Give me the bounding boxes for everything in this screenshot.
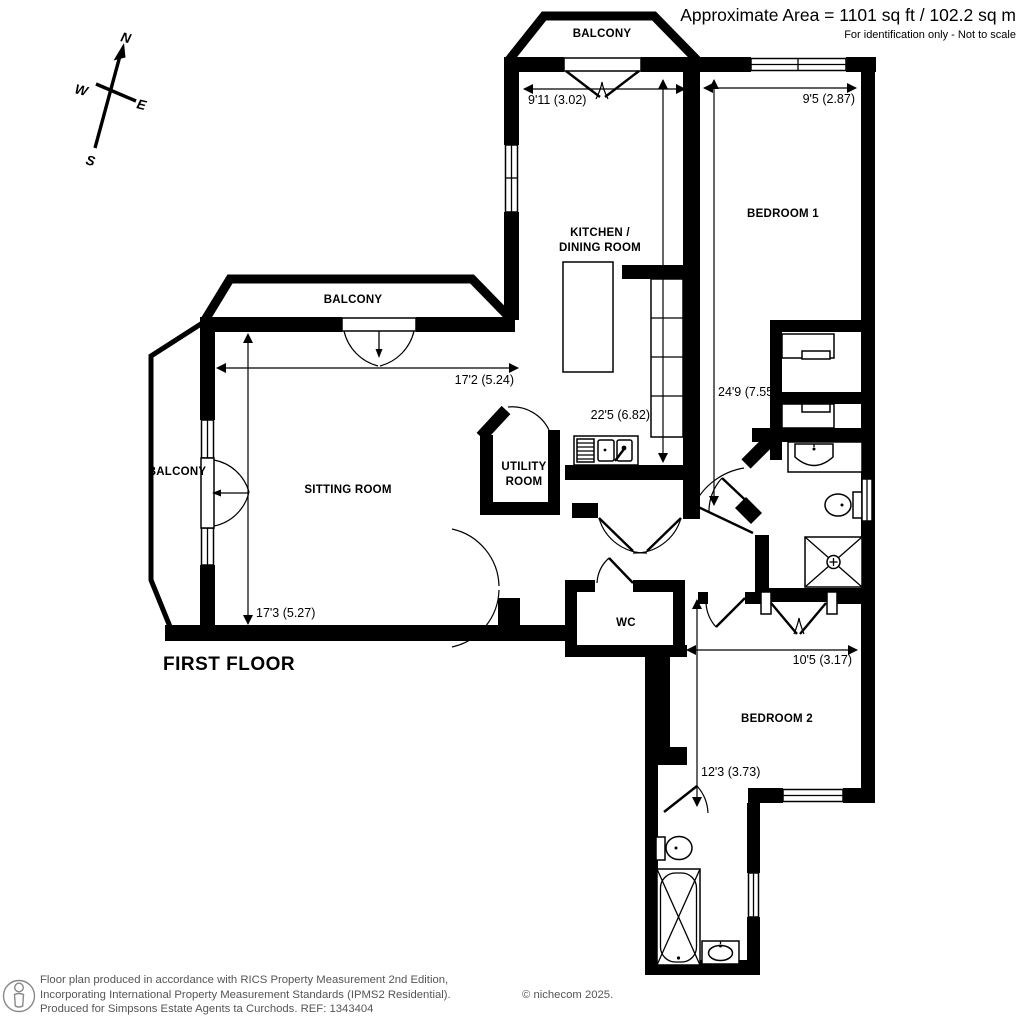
approximate-area-text: Approximate Area = 1101 sq ft / 102.2 sq… xyxy=(680,5,1016,25)
footer-copyright: © nichecom 2025. xyxy=(522,989,613,1001)
label-sitting-room: SITTING ROOM xyxy=(304,484,391,496)
french-doors xyxy=(201,458,249,528)
door-arc xyxy=(508,407,549,430)
footer-line2: Incorporating International Property Mea… xyxy=(40,989,451,1001)
label-utility-2: ROOM xyxy=(506,476,543,488)
label-kitchen-1: KITCHEN / xyxy=(570,227,630,239)
label-bedroom2: BEDROOM 2 xyxy=(741,713,813,725)
door-arc xyxy=(597,558,633,583)
window xyxy=(751,59,846,71)
window xyxy=(749,873,759,917)
radiator-icon xyxy=(862,479,872,521)
nichecom-logo-icon xyxy=(4,981,35,1012)
compass-n: N xyxy=(119,29,132,46)
label-wc: WC xyxy=(616,617,636,629)
wardrobe xyxy=(782,334,834,359)
dim-sitting-width: 17'2 (5.24) xyxy=(455,373,514,387)
balcony-left-outline xyxy=(151,322,204,634)
dim-kitchen-width: 9'11 (3.02) xyxy=(528,93,586,107)
window xyxy=(202,528,214,565)
footer-line3: Produced for Simpsons Estate Agents ta C… xyxy=(40,1003,373,1015)
french-doors xyxy=(342,318,416,366)
dim-bedroom2-width: 10'5 (3.17) xyxy=(793,653,852,667)
compass-s: S xyxy=(84,152,96,169)
floor-plan-drawing: 9'11 (3.02) 9'5 (2.87) 22'5 (6.82) 24'9 … xyxy=(0,0,1024,1020)
window xyxy=(506,145,518,212)
fixtures xyxy=(563,262,872,965)
doors xyxy=(201,58,837,813)
label-bedroom1: BEDROOM 1 xyxy=(747,208,819,220)
dim-bedroom1-length: 24'9 (7.55) xyxy=(718,385,777,399)
identification-note: For identification only - Not to scale xyxy=(844,29,1016,41)
dim-bedroom2-length: 12'3 (3.73) xyxy=(701,765,760,779)
walls xyxy=(165,57,876,975)
window xyxy=(202,420,214,458)
label-kitchen-2: DINING ROOM xyxy=(559,242,641,254)
label-balcony-top: BALCONY xyxy=(573,28,632,40)
basin-icon xyxy=(702,941,739,964)
dim-bedroom1-width: 9'5 (2.87) xyxy=(803,92,855,106)
dim-sitting-length: 17'3 (5.27) xyxy=(256,606,315,620)
shower-icon xyxy=(805,537,862,587)
toilet-icon xyxy=(656,837,692,861)
label-balcony-left: BALCONY xyxy=(148,466,207,478)
door-arc xyxy=(706,598,745,627)
compass-icon: N W E S xyxy=(73,29,148,169)
compass-w: W xyxy=(73,81,90,99)
basin-icon xyxy=(788,442,862,472)
kitchen-sink-icon xyxy=(574,436,638,465)
bath-icon xyxy=(657,869,700,965)
label-balcony-middle: BALCONY xyxy=(324,294,383,306)
double-doors xyxy=(599,518,681,553)
footer: Floor plan produced in accordance with R… xyxy=(4,974,614,1015)
compass-e: E xyxy=(135,96,148,113)
toilet-icon xyxy=(825,492,862,518)
dim-kitchen-length: 22'5 (6.82) xyxy=(591,408,650,422)
footer-line1: Floor plan produced in accordance with R… xyxy=(40,974,448,986)
window xyxy=(783,790,843,802)
kitchen-island xyxy=(563,262,613,372)
floor-plan-page: 9'11 (3.02) 9'5 (2.87) 22'5 (6.82) 24'9 … xyxy=(0,0,1024,1020)
kitchen-counter xyxy=(651,279,683,437)
door-arc xyxy=(664,786,708,813)
floor-title: FIRST FLOOR xyxy=(163,654,295,675)
wardrobe xyxy=(782,404,834,428)
label-utility-1: UTILITY xyxy=(501,461,546,473)
